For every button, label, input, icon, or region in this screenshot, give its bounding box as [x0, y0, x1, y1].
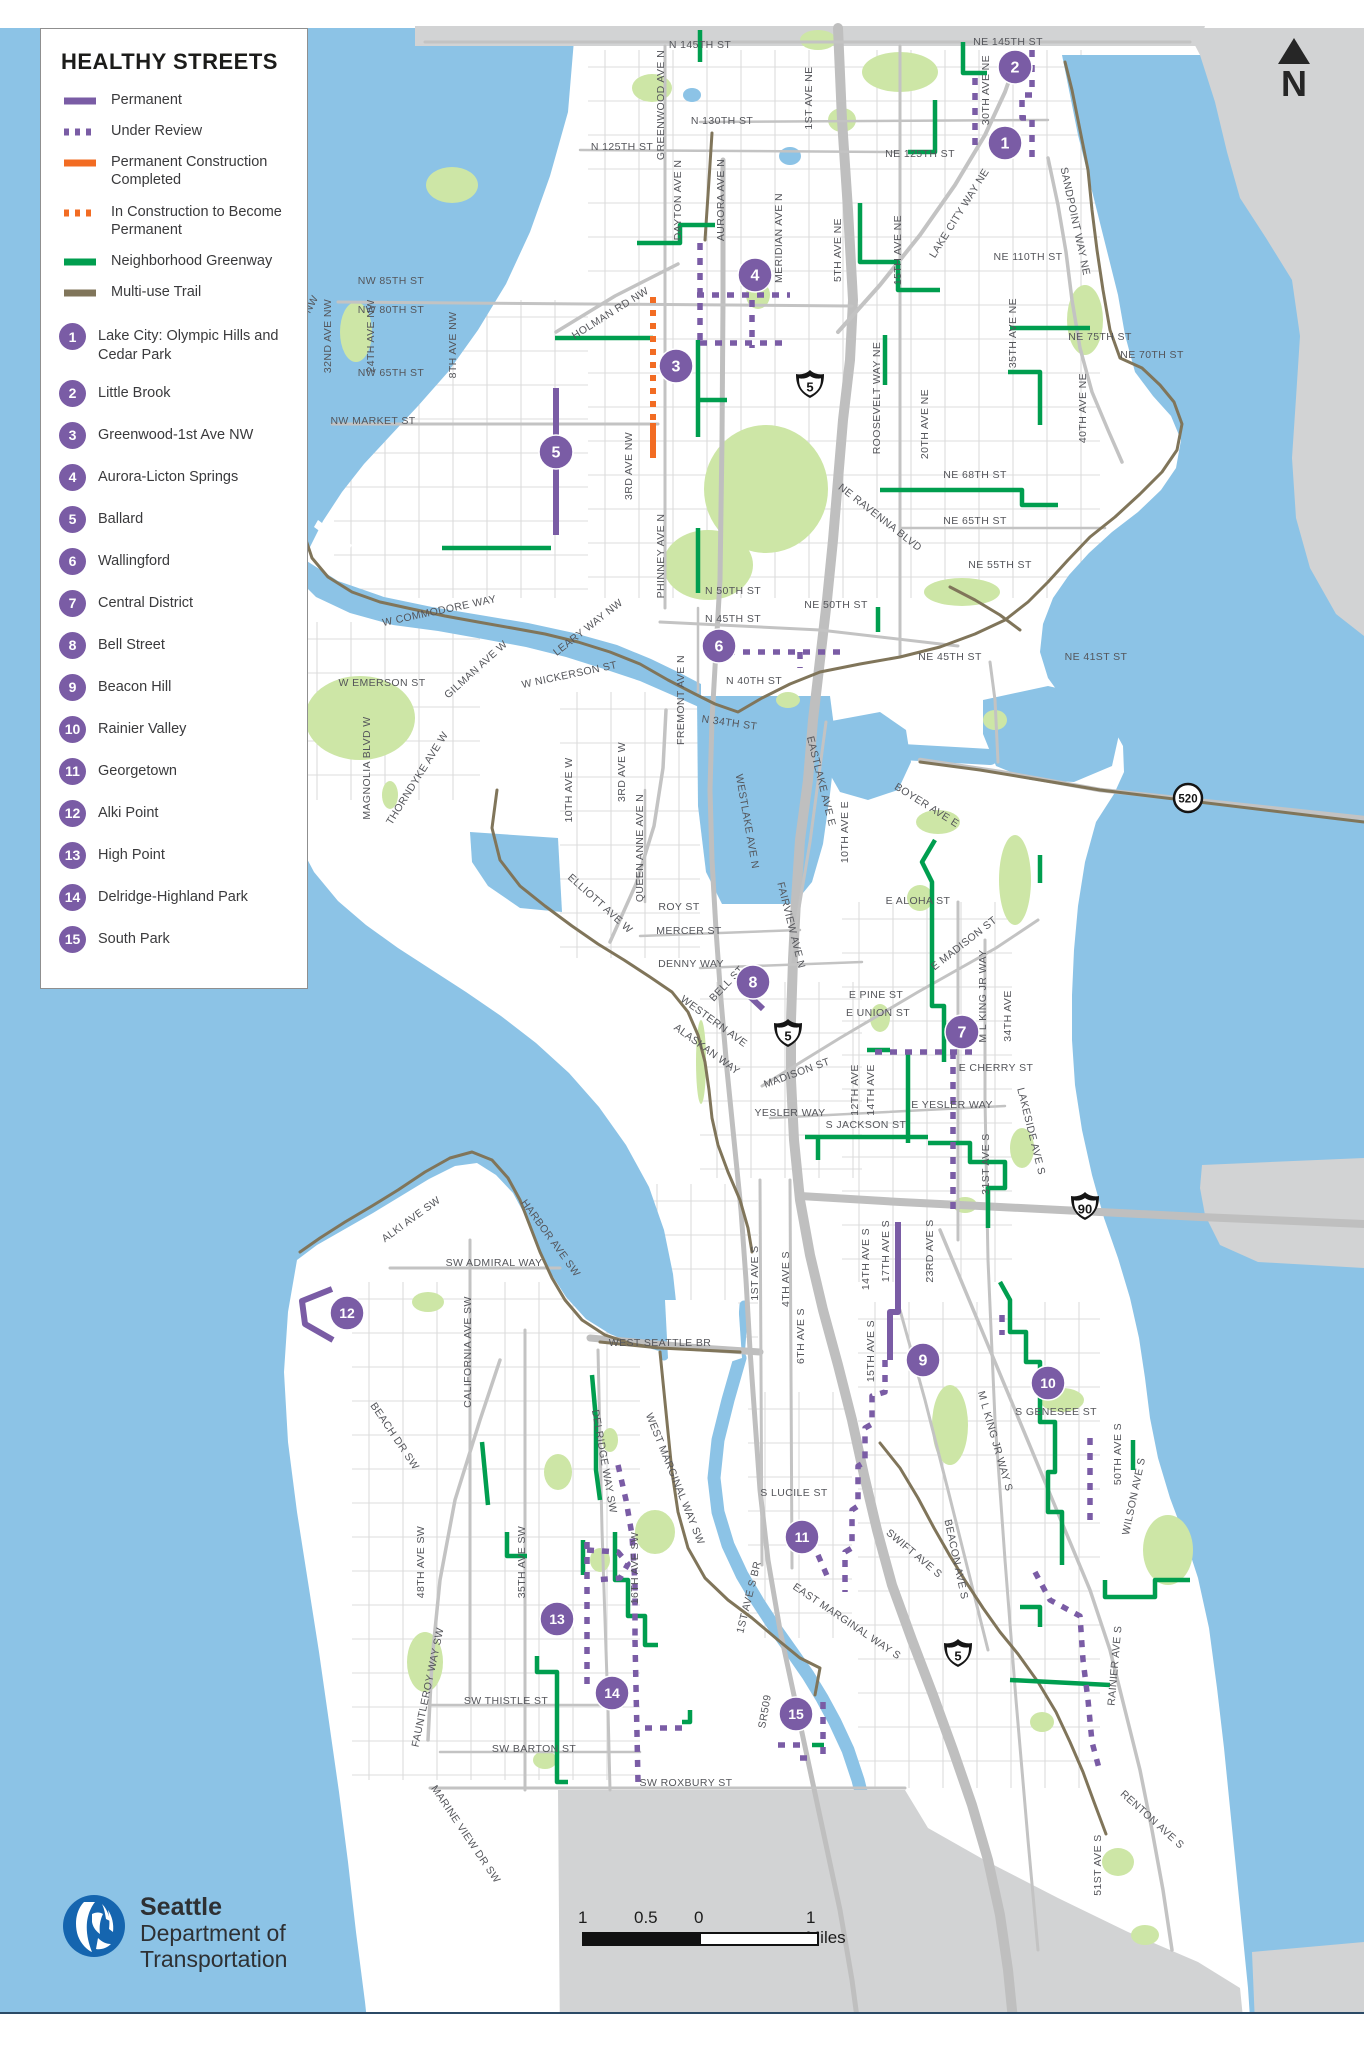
logo-line-1: Seattle: [140, 1894, 287, 1921]
street-label: 3RD AVE NW: [623, 432, 635, 500]
street-label: E PINE ST: [849, 989, 904, 1001]
area-marker-7: 7: [945, 1015, 979, 1049]
area-marker-5: 5: [539, 435, 573, 469]
area-marker-8: 8: [736, 965, 770, 999]
street-label: SW ADMIRAL WAY: [446, 1257, 543, 1269]
street-label: 30TH AVE NE: [980, 55, 992, 125]
scale-tick: 0: [694, 1908, 703, 1928]
legend-numbered-item-10: 10Rainier Valley: [59, 716, 293, 743]
legend-area-label: Bell Street: [98, 632, 165, 655]
street-label: 35TH AVE NE: [1007, 298, 1019, 368]
legend-numbered-item-2: 2Little Brook: [59, 380, 293, 407]
legend-area-label: Greenwood-1st Ave NW: [98, 422, 253, 445]
legend-area-label: Ballard: [98, 506, 143, 529]
street-label: ROOSEVELT WAY NE: [871, 342, 883, 455]
legend-item-label: In Construction to Become Permanent: [111, 203, 293, 239]
legend-area-label: Lake City: Olympic Hills and Cedar Park: [98, 323, 293, 365]
street-label: 10TH AVE W: [563, 757, 575, 822]
lake: [779, 147, 801, 165]
svg-text:9: 9: [919, 1353, 928, 1370]
legend-item-multi-use-trail: Multi-use Trail: [63, 283, 293, 301]
legend-item-under-review: Under Review: [63, 122, 293, 140]
park: [1143, 1515, 1193, 1585]
sdot-logo: Seattle Department of Transportation: [62, 1894, 287, 1973]
park: [426, 167, 478, 203]
area-marker-2: 2: [998, 50, 1032, 84]
street-label: N 145TH ST: [669, 39, 732, 51]
street-label: 3RD AVE W: [616, 742, 628, 802]
legend-numbered-item-11: 11Georgetown: [59, 758, 293, 785]
svg-text:1: 1: [1001, 136, 1010, 153]
legend-item-label: Neighborhood Greenway: [111, 252, 272, 270]
svg-text:3: 3: [672, 359, 681, 376]
street-label: 17TH AVE S: [880, 1220, 892, 1282]
street-label: AURORA AVE N: [715, 159, 727, 241]
legend-numbered-item-7: 7Central District: [59, 590, 293, 617]
legend-swatch-icon: [63, 287, 97, 299]
legend-swatch-icon: [63, 207, 97, 219]
street-label: WEST SEATTLE BR: [609, 1337, 711, 1349]
legend-area-label: Central District: [98, 590, 193, 613]
scale-bar: 10.501 Miles: [560, 1908, 850, 1946]
legend-item-label: Permanent: [111, 91, 182, 109]
legend-area-label: Beacon Hill: [98, 674, 171, 697]
map-page: 55590520N 145TH STNE 145TH STN 130TH STN…: [0, 0, 1364, 2048]
street-label: 15TH AVE S: [865, 1320, 877, 1382]
street-label: YESLER WAY: [754, 1107, 825, 1119]
street-label: SW BARTON ST: [492, 1743, 577, 1755]
svg-text:11: 11: [795, 1529, 810, 1545]
street-label: N 40TH ST: [726, 675, 782, 687]
street-label: NE 68TH ST: [943, 469, 1007, 481]
lake: [683, 88, 701, 102]
legend-item-permanent: Permanent: [63, 91, 293, 109]
svg-text:14: 14: [604, 1685, 620, 1701]
svg-text:520: 520: [1178, 794, 1197, 806]
area-marker-1: 1: [988, 126, 1022, 160]
highway-shield-icon: 520: [1174, 784, 1202, 812]
street-label: NE 145TH ST: [973, 36, 1043, 48]
street-label: 16TH AVE SW: [629, 1532, 641, 1604]
park: [1030, 1712, 1054, 1732]
svg-text:8: 8: [749, 975, 758, 992]
park: [776, 692, 800, 708]
legend-item-neighborhood-greenway: Neighborhood Greenway: [63, 252, 293, 270]
street-label: 31ST AVE S: [980, 1133, 992, 1194]
river: [902, 752, 990, 757]
street-label: 24TH AVE NW: [365, 299, 377, 372]
street-label: 14TH AVE: [865, 1064, 877, 1115]
street-label: GREENWOOD AVE N: [655, 50, 667, 160]
legend-numbered-item-12: 12Alki Point: [59, 800, 293, 827]
street-label: 48TH AVE SW: [415, 1526, 427, 1598]
area-marker-9: 9: [906, 1343, 940, 1377]
legend-area-label: Alki Point: [98, 800, 158, 823]
logo-line-3: Transportation: [140, 1947, 287, 1973]
street-label: NE 41ST ST: [1065, 651, 1128, 663]
street-label: 51ST AVE S: [1092, 1834, 1104, 1895]
street-label: S JACKSON ST: [826, 1119, 907, 1131]
legend-item-in-construction-to-become-permanent: In Construction to Become Permanent: [63, 203, 293, 239]
street-label: PHINNEY AVE N: [655, 514, 667, 599]
street-label: N 125TH ST: [591, 141, 654, 153]
legend-numbered-item-9: 9Beacon Hill: [59, 674, 293, 701]
legend-number-badge: 14: [59, 884, 86, 911]
legend-number-badge: 6: [59, 548, 86, 575]
legend-panel: HEALTHY STREETS PermanentUnder ReviewPer…: [40, 28, 308, 989]
street-label: NW MARKET ST: [330, 415, 415, 427]
svg-text:6: 6: [715, 639, 724, 656]
svg-text:5: 5: [784, 1029, 791, 1044]
seattle-city-seal-icon: [62, 1894, 126, 1958]
legend-item-label: Permanent Construction Completed: [111, 153, 293, 189]
street-label: 12TH AVE: [849, 1064, 861, 1115]
legend-swatch-icon: [63, 256, 97, 268]
area-marker-14: 14: [595, 1676, 629, 1710]
area-marker-15: 15: [779, 1697, 813, 1731]
street-label: DAYTON AVE N: [672, 160, 684, 241]
north-arrow: N: [1272, 38, 1316, 102]
svg-text:5: 5: [806, 380, 813, 395]
area-marker-10: 10: [1031, 1366, 1065, 1400]
legend-numbered-item-5: 5Ballard: [59, 506, 293, 533]
street-label: E CHERRY ST: [959, 1062, 1034, 1074]
svg-text:10: 10: [1040, 1375, 1056, 1391]
street-label: 1ST AVE S: [749, 1245, 761, 1300]
street-label: 20TH AVE NE: [919, 389, 931, 459]
street-label: 8TH AVE NW: [447, 312, 459, 379]
legend-numbered-item-1: 1Lake City: Olympic Hills and Cedar Park: [59, 323, 293, 365]
street-label: 50TH AVE S: [1112, 1423, 1124, 1485]
scale-tick: 0.5: [634, 1908, 658, 1928]
svg-text:5: 5: [552, 445, 561, 462]
street-label: 4TH AVE S: [780, 1251, 792, 1307]
street-label: W EMERSON ST: [338, 677, 425, 689]
legend-numbered-item-6: 6Wallingford: [59, 548, 293, 575]
legend-numbered-items: 1Lake City: Olympic Hills and Cedar Park…: [59, 323, 293, 953]
street-label: E YESLER WAY: [911, 1099, 993, 1111]
page-margin: [0, 2014, 1364, 2048]
street-label: NE 45TH ST: [918, 651, 982, 663]
street-label: S LUCILE ST: [760, 1487, 828, 1499]
legend-numbered-item-8: 8Bell Street: [59, 632, 293, 659]
street-label: NW 85TH ST: [358, 275, 425, 287]
street-label: SW THISTLE ST: [464, 1695, 549, 1707]
svg-text:4: 4: [751, 268, 760, 285]
legend-area-label: High Point: [98, 842, 165, 865]
legend-line-items: PermanentUnder ReviewPermanent Construct…: [59, 91, 293, 301]
scale-bar-black-segment: [584, 1934, 701, 1944]
street-label: 35TH AVE SW: [516, 1526, 528, 1598]
street-label: MAGNOLIA BLVD W: [361, 716, 373, 819]
park: [999, 835, 1031, 925]
street-label: SW ROXBURY ST: [640, 1777, 733, 1789]
legend-swatch-icon: [63, 95, 97, 107]
legend-area-label: Georgetown: [98, 758, 177, 781]
svg-text:12: 12: [339, 1305, 355, 1321]
north-label: N: [1272, 66, 1316, 102]
area-marker-11: 11: [785, 1520, 819, 1554]
area-marker-12: 12: [330, 1296, 364, 1330]
street-label: N 50TH ST: [705, 585, 761, 597]
street-label: 1ST AVE NE: [803, 66, 815, 129]
street-label: DENNY WAY: [658, 958, 724, 970]
legend-item-label: Under Review: [111, 122, 202, 140]
legend-number-badge: 7: [59, 590, 86, 617]
street-label: 6TH AVE S: [795, 1308, 807, 1364]
street-label: FREMONT AVE N: [675, 655, 687, 745]
legend-numbered-item-3: 3Greenwood-1st Ave NW: [59, 422, 293, 449]
legend-number-badge: 10: [59, 716, 86, 743]
legend-numbered-item-14: 14Delridge-Highland Park: [59, 884, 293, 911]
legend-swatch-icon: [63, 157, 97, 169]
scale-tick-labels: 10.501 Miles: [560, 1908, 850, 1928]
svg-text:7: 7: [958, 1025, 967, 1042]
street-label: 40TH AVE NE: [1077, 373, 1089, 443]
logo-line-2: Department of: [140, 1921, 287, 1947]
street-label: NE 110TH ST: [994, 251, 1063, 263]
street-label: E ALOHA ST: [886, 895, 951, 907]
legend-swatch-icon: [63, 126, 97, 138]
park: [800, 30, 836, 50]
park: [544, 1454, 572, 1490]
legend-number-badge: 12: [59, 800, 86, 827]
legend-number-badge: 9: [59, 674, 86, 701]
street-label: 14TH AVE S: [860, 1228, 872, 1290]
legend-number-badge: 1: [59, 323, 86, 350]
street-label: E UNION ST: [846, 1007, 910, 1019]
street-label: NE 65TH ST: [943, 515, 1007, 527]
svg-text:13: 13: [549, 1611, 565, 1627]
street-label: 32ND AVE NW: [322, 299, 334, 373]
legend-item-permanent-construction-completed: Permanent Construction Completed: [63, 153, 293, 189]
area-marker-6: 6: [702, 629, 736, 663]
street-label: S GENESEE ST: [1015, 1406, 1097, 1418]
street-label: 23RD AVE S: [924, 1219, 936, 1282]
legend-title: HEALTHY STREETS: [61, 49, 293, 75]
legend-number-badge: 13: [59, 842, 86, 869]
legend-area-label: Wallingford: [98, 548, 170, 571]
legend-area-label: Rainier Valley: [98, 716, 186, 739]
street-label: NE 75TH ST: [1068, 331, 1132, 343]
legend-numbered-item-4: 4Aurora-Licton Springs: [59, 464, 293, 491]
legend-numbered-item-13: 13High Point: [59, 842, 293, 869]
street-label: NE 55TH ST: [968, 559, 1032, 571]
legend-area-label: Little Brook: [98, 380, 171, 403]
street-label: MERCER ST: [656, 925, 722, 937]
legend-number-badge: 8: [59, 632, 86, 659]
street-label: NE 50TH ST: [804, 599, 868, 611]
legend-area-label: Delridge-Highland Park: [98, 884, 248, 907]
street-label: ROY ST: [658, 901, 699, 913]
street-label: 34TH AVE: [1002, 990, 1014, 1041]
park: [412, 1292, 444, 1312]
legend-area-label: South Park: [98, 926, 170, 949]
park: [1102, 1848, 1134, 1876]
legend-number-badge: 11: [59, 758, 86, 785]
area-marker-3: 3: [659, 349, 693, 383]
svg-text:90: 90: [1078, 1202, 1092, 1217]
area-marker-13: 13: [540, 1602, 574, 1636]
legend-item-label: Multi-use Trail: [111, 283, 201, 301]
street-label: QUEEN ANNE AVE N: [634, 794, 646, 902]
park: [1131, 1925, 1159, 1945]
street-label: NE 125TH ST: [885, 148, 955, 160]
street-label: NE 70TH ST: [1120, 349, 1184, 361]
legend-number-badge: 15: [59, 926, 86, 953]
street-label: 5TH AVE NE: [832, 218, 844, 282]
svg-text:15: 15: [788, 1706, 804, 1722]
legend-number-badge: 2: [59, 380, 86, 407]
street-label: MERIDIAN AVE N: [773, 193, 785, 283]
scale-bar-graphic: [582, 1932, 819, 1946]
street-label: 15TH AVE NE: [892, 215, 904, 285]
street-label: 10TH AVE E: [839, 801, 851, 863]
legend-number-badge: 5: [59, 506, 86, 533]
arterial-street: [790, 1180, 792, 1568]
scale-tick: 1: [578, 1908, 587, 1928]
svg-text:2: 2: [1011, 60, 1020, 77]
legend-area-label: Aurora-Licton Springs: [98, 464, 238, 487]
north-arrow-icon: [1278, 38, 1310, 64]
island-or-pier: [665, 1300, 742, 1372]
legend-number-badge: 3: [59, 422, 86, 449]
arterial-street: [760, 1180, 762, 1565]
legend-number-badge: 4: [59, 464, 86, 491]
area-marker-4: 4: [738, 258, 772, 292]
park: [635, 1510, 675, 1554]
street-label: CALIFORNIA AVE SW: [462, 1296, 474, 1408]
svg-text:5: 5: [954, 1649, 961, 1664]
street-label: N 130TH ST: [691, 115, 754, 127]
legend-numbered-item-15: 15South Park: [59, 926, 293, 953]
street-label: N 45TH ST: [705, 613, 761, 625]
